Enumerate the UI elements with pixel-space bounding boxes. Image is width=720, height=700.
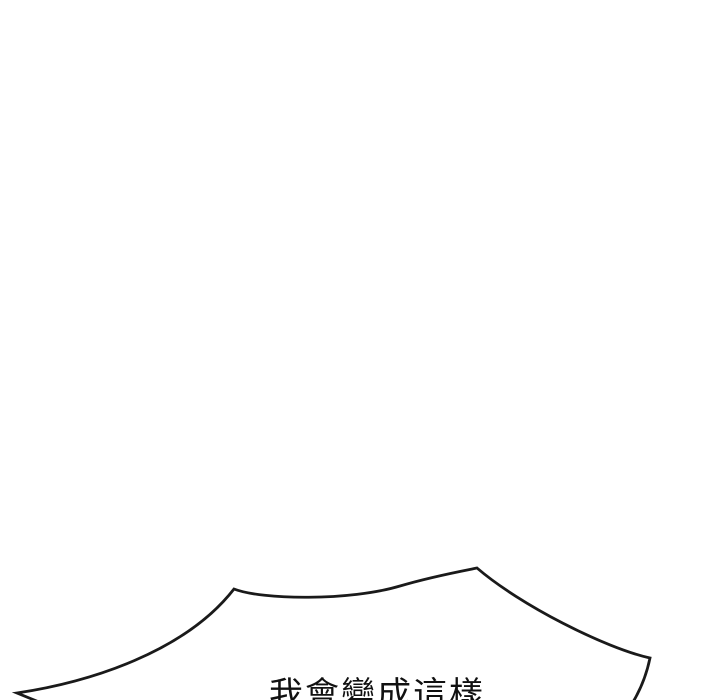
speech-bubble-text: 我會變成這樣 — [269, 676, 485, 700]
comic-panel: 我會變成這樣 — [0, 0, 720, 700]
speech-bubble-graphic — [0, 0, 720, 700]
